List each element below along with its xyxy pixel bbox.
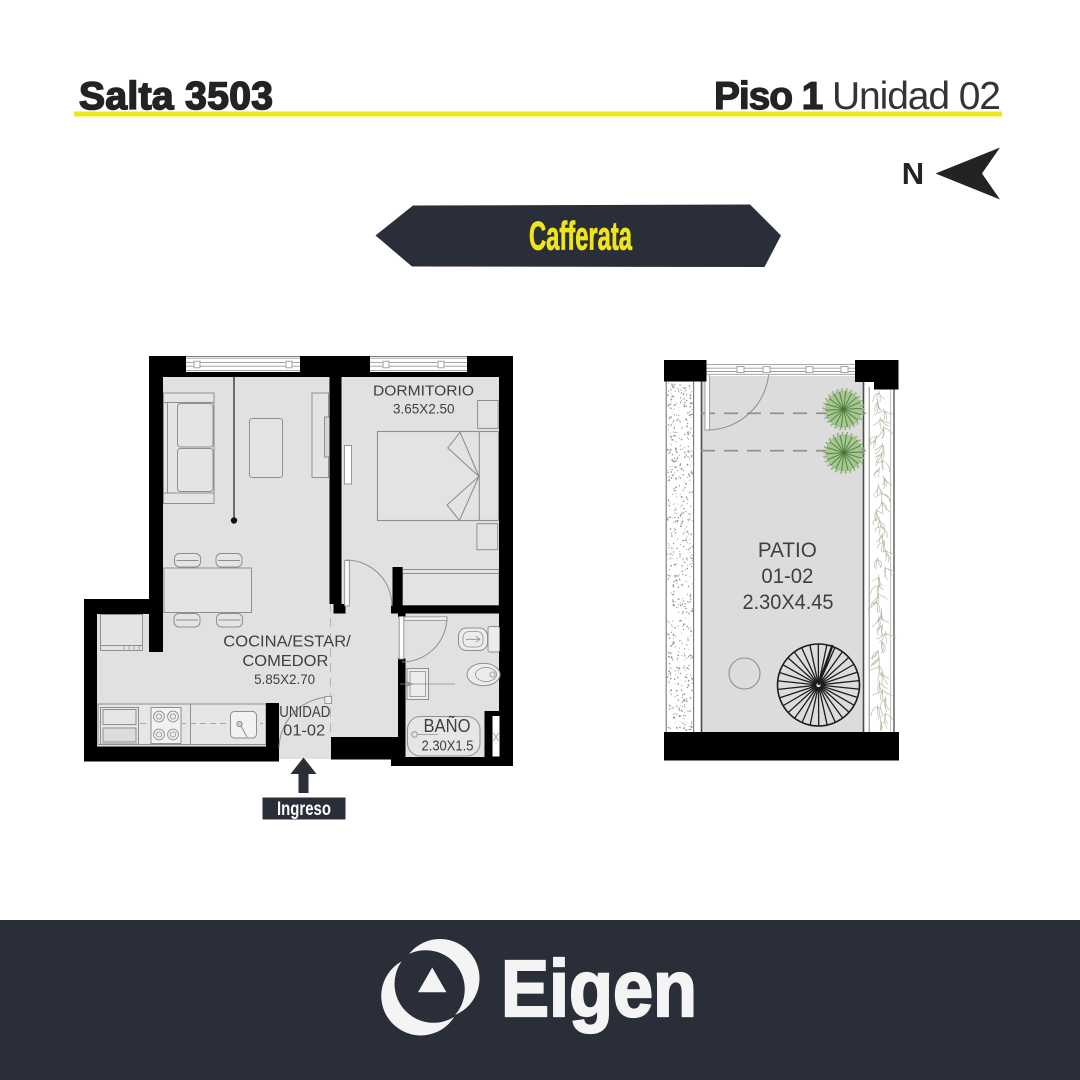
svg-text:Ingreso: Ingreso <box>277 799 331 820</box>
svg-text:3.65X2.50: 3.65X2.50 <box>393 402 455 417</box>
svg-text:01-02: 01-02 <box>761 565 813 588</box>
svg-text:BAÑO: BAÑO <box>424 715 471 736</box>
svg-text:UNIDAD: UNIDAD <box>279 704 330 721</box>
svg-text:COMEDOR: COMEDOR <box>242 653 328 670</box>
svg-text:2.30X4.45: 2.30X4.45 <box>743 591 834 614</box>
svg-text:PATIO: PATIO <box>758 539 817 562</box>
svg-text:5.85X2.70: 5.85X2.70 <box>254 672 315 687</box>
svg-text:DORMITORIO: DORMITORIO <box>373 383 474 400</box>
svg-text:01-02: 01-02 <box>283 722 325 739</box>
svg-text:Eigen: Eigen <box>501 944 697 1033</box>
svg-text:Cafferata: Cafferata <box>529 215 632 259</box>
svg-text:N: N <box>902 156 924 191</box>
svg-text:COCINA/ESTAR/: COCINA/ESTAR/ <box>223 634 351 651</box>
svg-text:2.30X1.5: 2.30X1.5 <box>422 738 474 754</box>
